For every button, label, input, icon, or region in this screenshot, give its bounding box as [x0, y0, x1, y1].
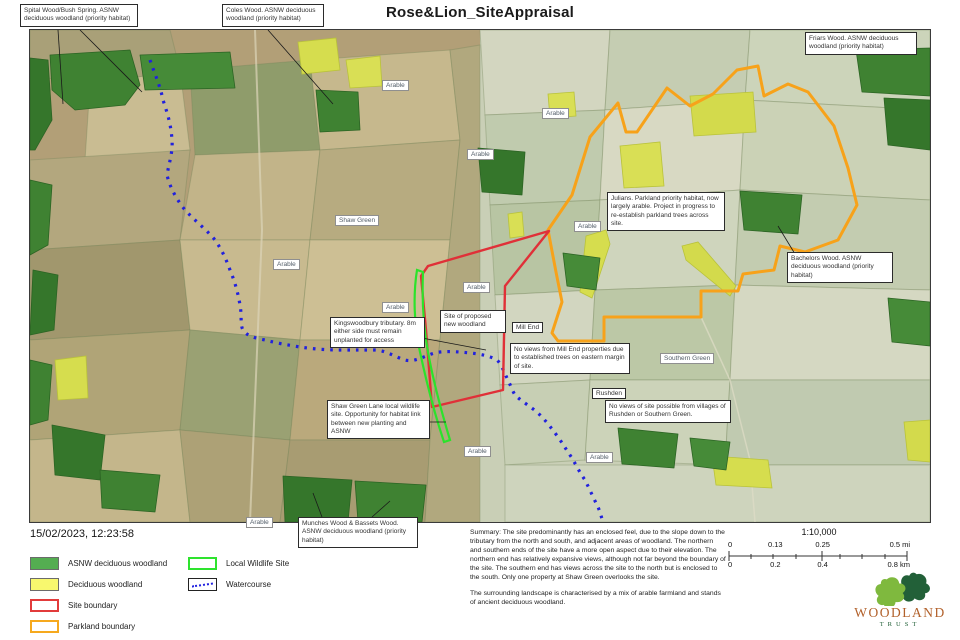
legend-label: ASNW deciduous woodland [68, 559, 167, 568]
area-label-arable: Arable [586, 452, 613, 463]
aerial-map: Spital Wood/Bush Spring. ASNW deciduous … [29, 29, 931, 523]
export-timestamp: 15/02/2023, 12:23:58 [30, 528, 134, 540]
summary-text: Summary: The site predominantly has an e… [470, 528, 726, 614]
callout-kingswoodbury-tributary: Kingswoodbury tributary. 8m either side … [330, 317, 425, 348]
legend-label: Site boundary [68, 601, 117, 610]
place-label-southern-green: Southern Green [660, 353, 714, 364]
logo-leaves-icon [868, 572, 932, 606]
summary-paragraph-1: Summary: The site predominantly has an e… [470, 528, 726, 582]
place-label-rushden: Rushden [592, 388, 626, 399]
callout-coles-wood: Coles Wood. ASNW deciduous woodland (pri… [222, 4, 324, 27]
scale-mi-3: 0.5 mi [890, 540, 910, 549]
legend-label: Watercourse [226, 580, 271, 589]
legend-swatch-deciduous-icon [30, 578, 59, 591]
area-label-arable: Arable [246, 517, 273, 528]
scale-km-0: 0 [728, 560, 732, 569]
legend-label: Parkland boundary [68, 622, 135, 631]
callout-bachelors-wood: Bachelors Wood. ASNW deciduous woodland … [787, 252, 893, 283]
scale-mi-2: 0.25 [815, 540, 830, 549]
legend-swatch-site-boundary-icon [30, 599, 59, 612]
scale-km-3: 0.8 km [887, 560, 910, 569]
area-label-arable: Arable [382, 80, 409, 91]
area-label-arable: Arable [463, 282, 490, 293]
logo-wordmark: WOODLAND [850, 606, 950, 620]
scale-km-1: 0.2 [770, 560, 780, 569]
callout-mill-end-note: No views from Mill End properties due to… [510, 343, 630, 374]
callout-julians-parkland: Julians. Parkland priority habitat, now … [607, 192, 725, 231]
area-label-arable: Arable [464, 446, 491, 457]
legend-swatch-local-wildlife-site-icon [188, 557, 217, 570]
legend-swatch-watercourse-icon [188, 578, 217, 591]
callout-friars-wood: Friars Wood. ASNW deciduous woodland (pr… [805, 32, 917, 55]
scale-km-2: 0.4 [817, 560, 827, 569]
legend-label: Deciduous woodland [68, 580, 142, 589]
place-label-mill-end: Mill End [512, 322, 543, 333]
area-label-arable: Arable [467, 149, 494, 160]
woodland-trust-logo: WOODLAND TRUST [850, 572, 950, 634]
area-label-arable: Arable [574, 221, 601, 232]
callout-proposed-woodland-site: Site of proposed new woodland [440, 310, 506, 333]
legend-label: Local Wildlife Site [226, 559, 289, 568]
scale-km-labels: 0 0.2 0.4 0.8 km [728, 560, 910, 569]
legend-swatch-asnw-icon [30, 557, 59, 570]
place-label-shaw-green: Shaw Green [335, 215, 379, 226]
map-legend: ASNW deciduous woodland Deciduous woodla… [30, 551, 330, 636]
page-title: Rose&Lion_SiteAppraisal [0, 4, 960, 21]
callout-spital-wood: Spital Wood/Bush Spring. ASNW deciduous … [20, 4, 138, 27]
callout-munches-bassets-wood: Munches Wood & Bassets Wood. ASNW decidu… [298, 517, 418, 548]
callout-rushden-note: No views of site possible from villages … [605, 400, 731, 423]
scale-mi-0: 0 [728, 540, 732, 549]
scale-miles-labels: 0 0.13 0.25 0.5 mi [728, 540, 910, 549]
scale-mi-1: 0.13 [768, 540, 783, 549]
area-label-arable: Arable [382, 302, 409, 313]
area-label-arable: Arable [542, 108, 569, 119]
logo-subtext: TRUST [850, 622, 950, 629]
callout-shaw-green-lane: Shaw Green Lane local wildlife site. Opp… [327, 400, 430, 439]
site-appraisal-page: Rose&Lion_SiteAppraisal [0, 0, 960, 640]
scale-ratio: 1:10,000 [728, 527, 910, 537]
area-label-arable: Arable [273, 259, 300, 270]
summary-paragraph-2: The surrounding landscape is characteris… [470, 589, 726, 607]
legend-swatch-parkland-boundary-icon [30, 620, 59, 633]
